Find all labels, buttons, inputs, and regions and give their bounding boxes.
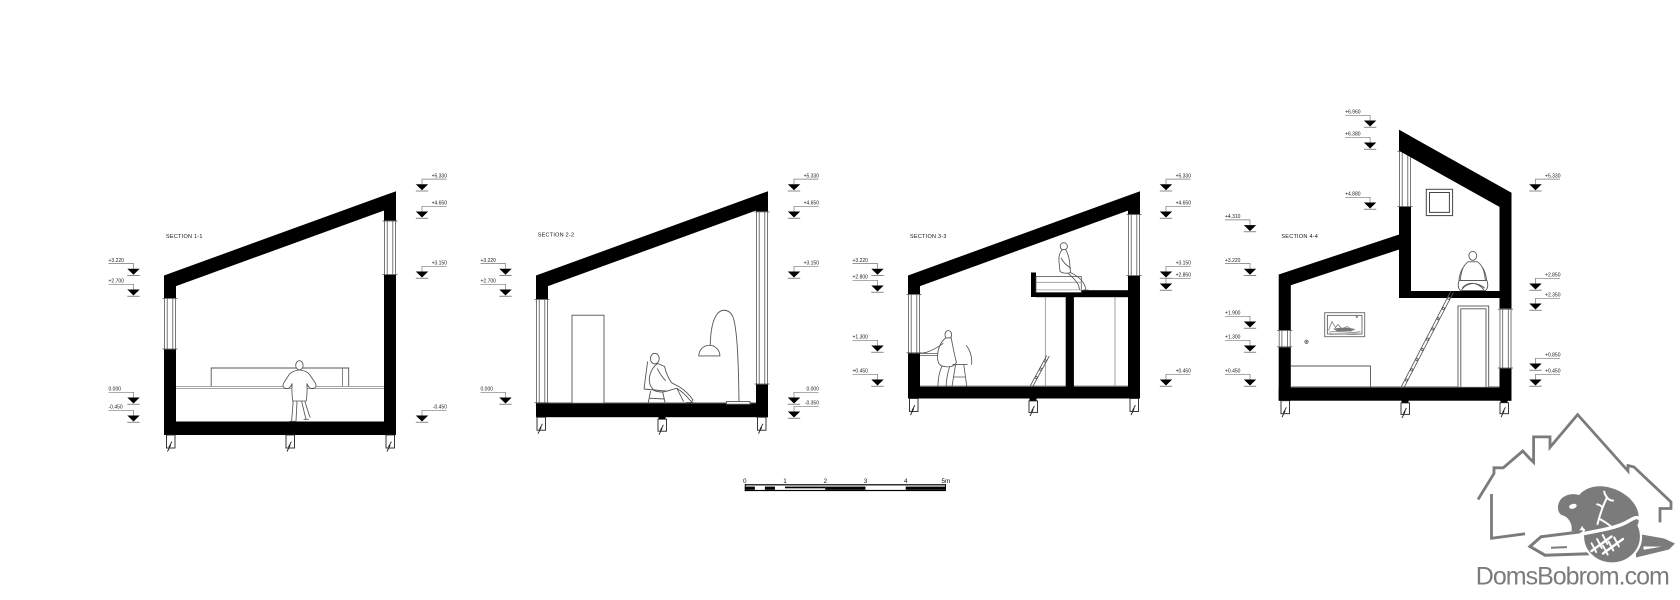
- svg-text:+5.330: +5.330: [1545, 173, 1561, 179]
- svg-text:+3.220: +3.220: [109, 258, 125, 264]
- svg-text:0.000: 0.000: [109, 387, 122, 393]
- svg-text:+1.900: +1.900: [1225, 311, 1241, 317]
- svg-text:+5.330: +5.330: [432, 173, 448, 179]
- svg-text:0: 0: [743, 478, 747, 485]
- svg-text:+2.700: +2.700: [109, 279, 125, 285]
- svg-text:0.000: 0.000: [806, 387, 819, 393]
- svg-text:+4.310: +4.310: [1225, 214, 1241, 220]
- svg-text:0.000: 0.000: [481, 387, 494, 393]
- svg-text:+0.450: +0.450: [1176, 369, 1192, 375]
- svg-text:+0.450: +0.450: [1225, 369, 1241, 375]
- svg-text:+3.150: +3.150: [804, 261, 820, 267]
- svg-text:SECTION 3-3: SECTION 3-3: [910, 234, 947, 240]
- svg-text:3: 3: [864, 478, 868, 485]
- svg-text:DomsBobrom.com: DomsBobrom.com: [1476, 563, 1669, 591]
- svg-text:+0.450: +0.450: [1545, 369, 1561, 375]
- svg-text:+3.220: +3.220: [481, 258, 497, 264]
- svg-text:5m: 5m: [942, 478, 951, 485]
- svg-text:+0.450: +0.450: [853, 369, 869, 375]
- svg-text:1: 1: [783, 478, 787, 485]
- svg-text:+5.330: +5.330: [804, 173, 820, 179]
- svg-text:+4.650: +4.650: [804, 201, 820, 207]
- svg-text:+4.650: +4.650: [1176, 201, 1192, 207]
- svg-text:+1.300: +1.300: [853, 335, 869, 341]
- svg-text:+2.850: +2.850: [1545, 273, 1561, 279]
- svg-text:+5.330: +5.330: [1176, 173, 1192, 179]
- svg-text:+2.700: +2.700: [481, 279, 497, 285]
- svg-text:-0.450: -0.450: [433, 405, 447, 411]
- svg-text:+3.220: +3.220: [853, 258, 869, 264]
- svg-text:SECTION 2-2: SECTION 2-2: [538, 233, 575, 239]
- svg-text:+0.850: +0.850: [1545, 353, 1561, 359]
- svg-text:+3.150: +3.150: [1176, 261, 1192, 267]
- svg-text:+4.880: +4.880: [1345, 192, 1361, 198]
- svg-text:+4.650: +4.650: [432, 201, 448, 207]
- svg-text:+6.380: +6.380: [1345, 132, 1361, 138]
- svg-text:2: 2: [823, 478, 827, 485]
- svg-text:+2.800: +2.800: [853, 275, 869, 281]
- svg-text:+3.220: +3.220: [1225, 258, 1241, 264]
- svg-text:+1.300: +1.300: [1225, 335, 1241, 341]
- svg-text:+2.350: +2.350: [1545, 293, 1561, 299]
- svg-text:SECTION 1-1: SECTION 1-1: [166, 234, 203, 240]
- svg-text:-0.350: -0.350: [805, 401, 819, 407]
- svg-text:SECTION 4-4: SECTION 4-4: [1281, 234, 1318, 240]
- svg-text:-0.450: -0.450: [109, 405, 123, 411]
- svg-text:+2.850: +2.850: [1176, 273, 1192, 279]
- svg-text:+3.150: +3.150: [432, 261, 448, 267]
- svg-text:+6.960: +6.960: [1345, 110, 1361, 116]
- svg-text:4: 4: [904, 478, 908, 485]
